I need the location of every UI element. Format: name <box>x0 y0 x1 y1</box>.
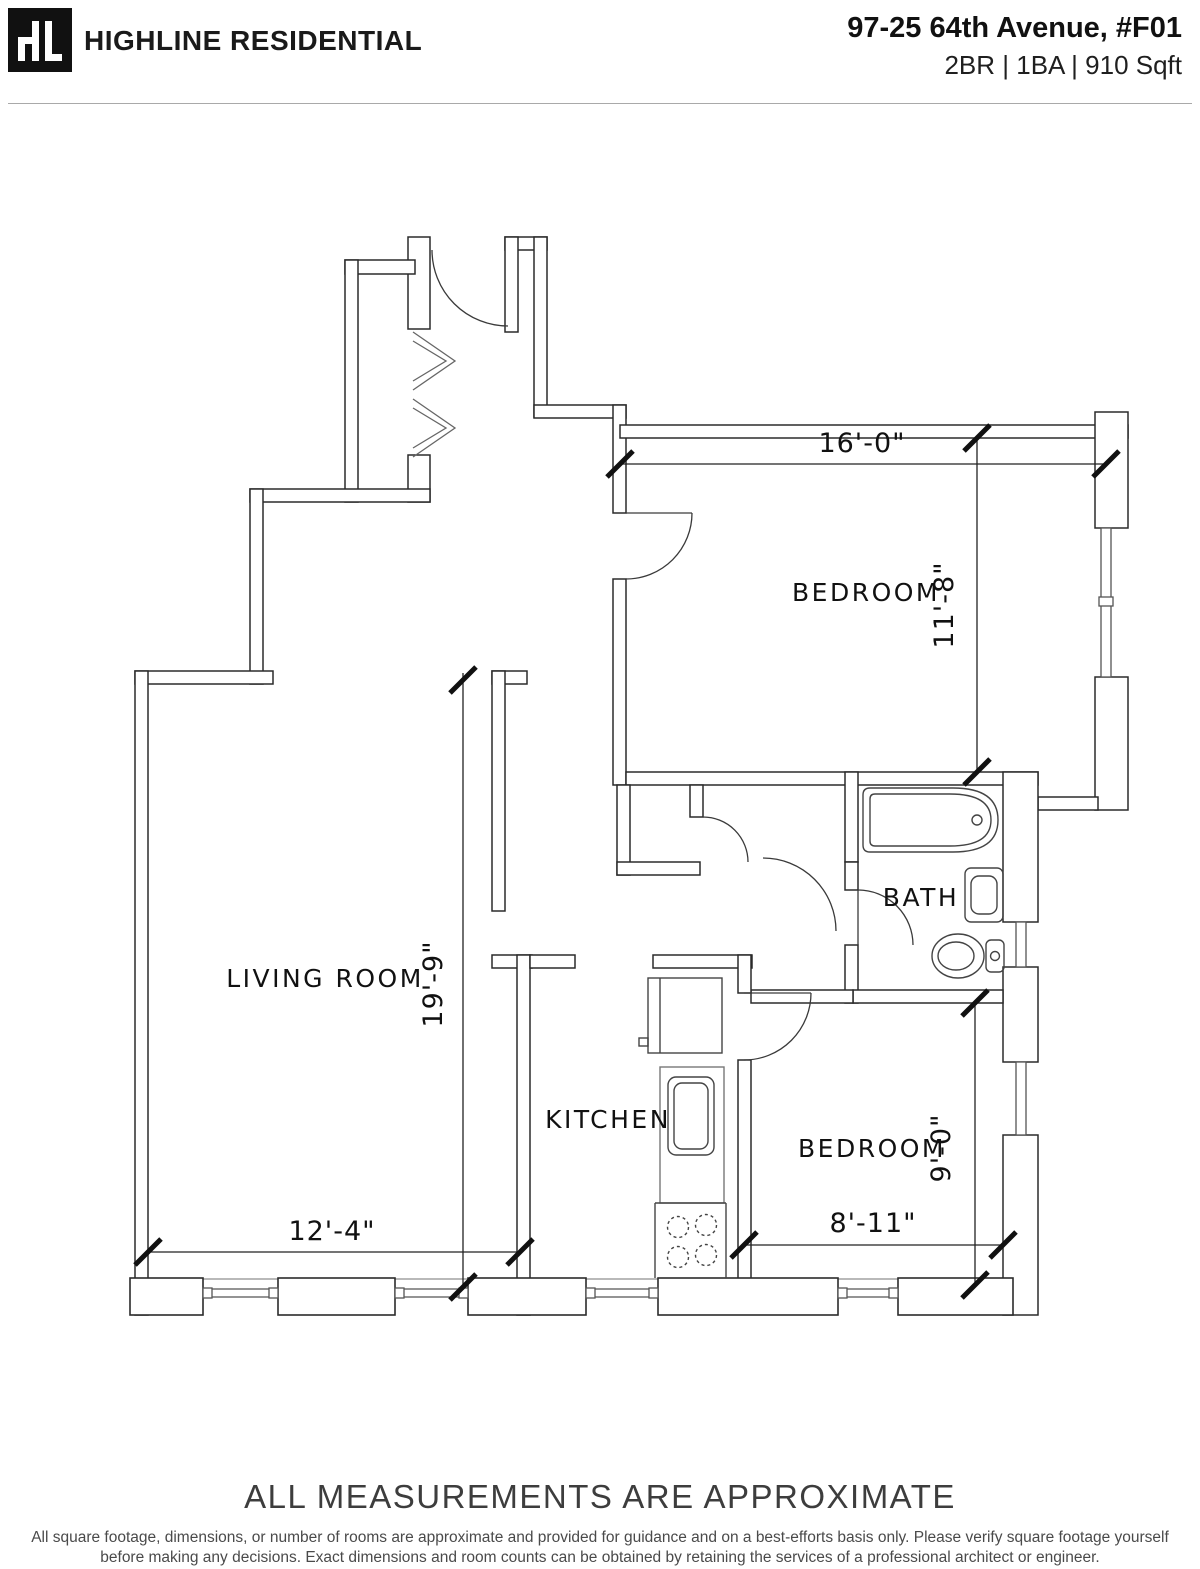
bath-sink-basin <box>971 876 997 914</box>
wall-pier <box>130 1278 203 1315</box>
window-bath <box>1016 922 1026 967</box>
wall <box>534 405 626 418</box>
bath-label: BATH <box>883 883 959 912</box>
hall-door-arc <box>763 858 836 931</box>
wall <box>690 785 703 817</box>
wall <box>530 955 575 968</box>
bedroom-2-label: BEDROOM <box>798 1134 946 1163</box>
wall-pier <box>658 1278 838 1315</box>
refrigerator-handle <box>639 1038 648 1046</box>
measurements-notice: ALL MEASUREMENTS ARE APPROXIMATE <box>0 1478 1200 1516</box>
kitchen-label: KITCHEN <box>545 1105 671 1134</box>
wall <box>845 772 858 862</box>
stove-burners <box>668 1215 717 1268</box>
wall <box>845 862 858 890</box>
doors <box>432 250 913 1060</box>
wall <box>517 955 530 1315</box>
highline-logo-icon <box>8 8 72 72</box>
bathtub-inner <box>870 794 991 846</box>
dim-label-16-0: 16'-0" <box>818 428 905 459</box>
kitchen-sink-basin <box>674 1083 708 1149</box>
bifold-closet-doors <box>413 332 455 457</box>
wall <box>617 862 700 875</box>
living-room-label: LIVING ROOM <box>226 964 424 993</box>
tub-faucet <box>972 815 982 825</box>
wall <box>135 671 148 1315</box>
wall <box>613 579 626 785</box>
entry-door-arc <box>432 250 508 326</box>
wall <box>345 260 358 502</box>
refrigerator <box>648 978 722 1053</box>
wall <box>250 489 430 502</box>
wall <box>505 237 518 332</box>
wall <box>1003 967 1038 1062</box>
listing-address: 97-25 64th Avenue, #F01 <box>847 12 1182 45</box>
bedroom1-door-arc <box>626 513 692 579</box>
wall-pier <box>898 1278 1013 1315</box>
header-divider <box>8 103 1192 104</box>
dim-label-9-0: 9'-0" <box>926 1114 957 1183</box>
bathtub <box>863 788 998 852</box>
wall <box>653 955 752 968</box>
wall <box>738 955 751 993</box>
logo-monogram <box>18 21 62 61</box>
wall-pier <box>278 1278 395 1315</box>
wall <box>1038 797 1098 810</box>
bedroom-1-label: BEDROOM <box>792 578 940 607</box>
toilet-bowl <box>932 934 984 978</box>
wall <box>1095 677 1128 810</box>
header: HIGHLINE RESIDENTIAL 97-25 64th Avenue, … <box>0 0 1200 104</box>
dim-label-11-8: 11'-8" <box>929 561 960 648</box>
legal-disclaimer: All square footage, dimensions, or numbe… <box>30 1528 1170 1569</box>
wall <box>751 990 853 1003</box>
floorplan-drawing: BEDROOM BATH LIVING ROOM KITCHEN BEDROOM… <box>0 0 1200 1569</box>
wall <box>492 671 505 911</box>
wall-pier <box>468 1278 586 1315</box>
listing-specs: 2BR | 1BA | 910 Sqft <box>944 50 1182 81</box>
toilet-valve <box>991 952 1000 961</box>
dim-label-8-11: 8'-11" <box>829 1208 916 1239</box>
wall <box>135 671 273 684</box>
dim-label-12-4: 12'-4" <box>288 1216 375 1247</box>
window-bedroom2 <box>1016 1062 1026 1135</box>
brand-name: HIGHLINE RESIDENTIAL <box>84 25 422 57</box>
toilet-bowl-inner <box>938 942 974 970</box>
toilet-tank <box>986 940 1004 972</box>
wall <box>534 237 547 417</box>
walls <box>135 237 1128 1315</box>
wall <box>1003 772 1038 922</box>
wall <box>408 237 430 329</box>
dim-label-19-9: 19'-9" <box>418 940 449 1027</box>
hall-closet-door-arc <box>703 817 748 862</box>
window-mullion <box>1099 597 1113 606</box>
wall <box>250 489 263 684</box>
